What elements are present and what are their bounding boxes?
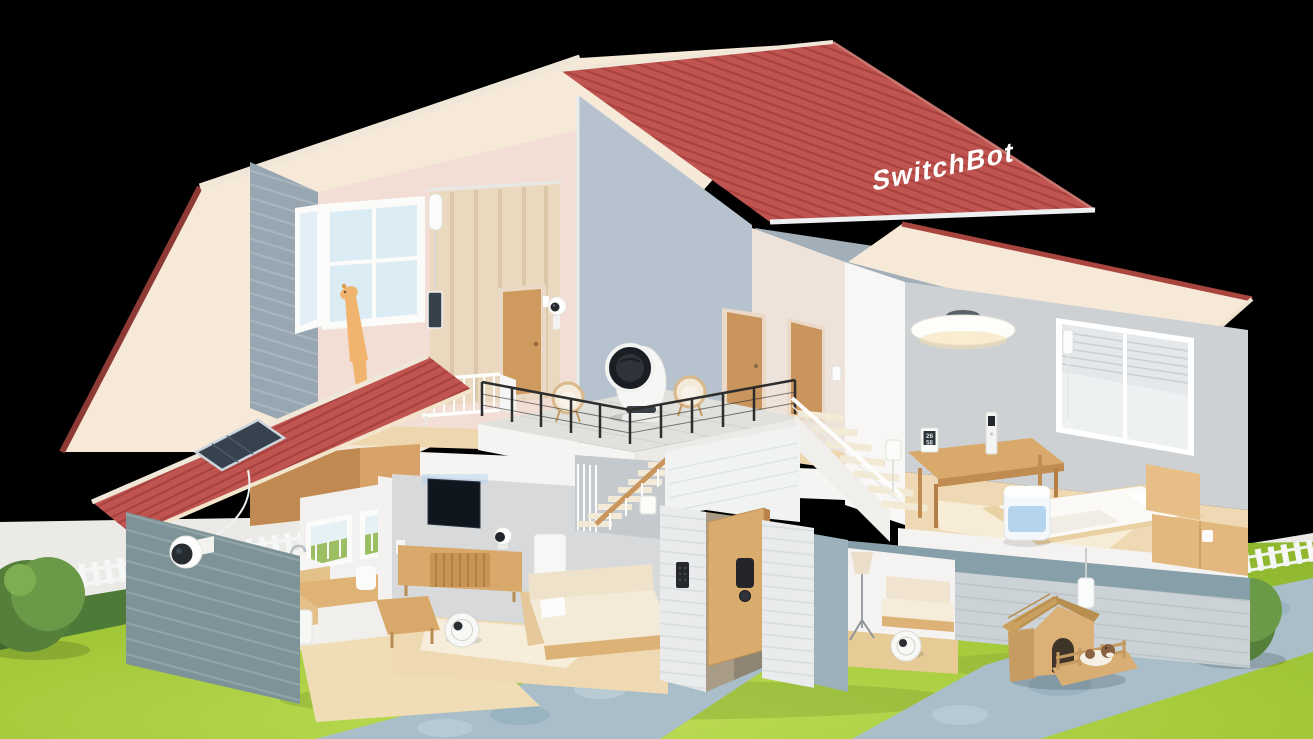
dining-chair	[356, 566, 376, 590]
bot-button-presser-icon	[1202, 530, 1213, 542]
den-sofa	[882, 576, 954, 632]
throw-blanket	[540, 597, 566, 618]
blind-tilt-icon	[1063, 330, 1073, 354]
smart-humidifier-icon	[1003, 486, 1051, 547]
bush-left	[0, 557, 90, 660]
wall-switch-bot-icon	[832, 366, 841, 381]
curtain-solar-charger-icon	[428, 292, 442, 328]
wall-corner-trim	[378, 476, 392, 610]
kennel-side-wall	[1008, 628, 1036, 682]
scene-canvas: SwitchBot	[0, 0, 1313, 739]
meter-hub-icon: 26 58	[921, 428, 938, 452]
smart-home-render: SwitchBot	[0, 0, 1313, 739]
television	[428, 479, 480, 528]
front-door	[708, 508, 770, 666]
meter-temperature: 26	[926, 433, 934, 440]
bedroom-window-blinds	[1056, 318, 1194, 456]
remote-control-icon	[986, 412, 997, 454]
meter-humidity: 58	[926, 441, 933, 447]
wall-hub-icon	[640, 496, 656, 514]
keypad-icon	[676, 562, 689, 588]
nursery-window	[295, 196, 425, 334]
entryway	[660, 425, 814, 692]
entry-brick-right	[762, 520, 814, 688]
entry-brick-pier-left	[660, 505, 706, 692]
living-room	[376, 455, 682, 694]
teal-pillar	[814, 534, 848, 692]
